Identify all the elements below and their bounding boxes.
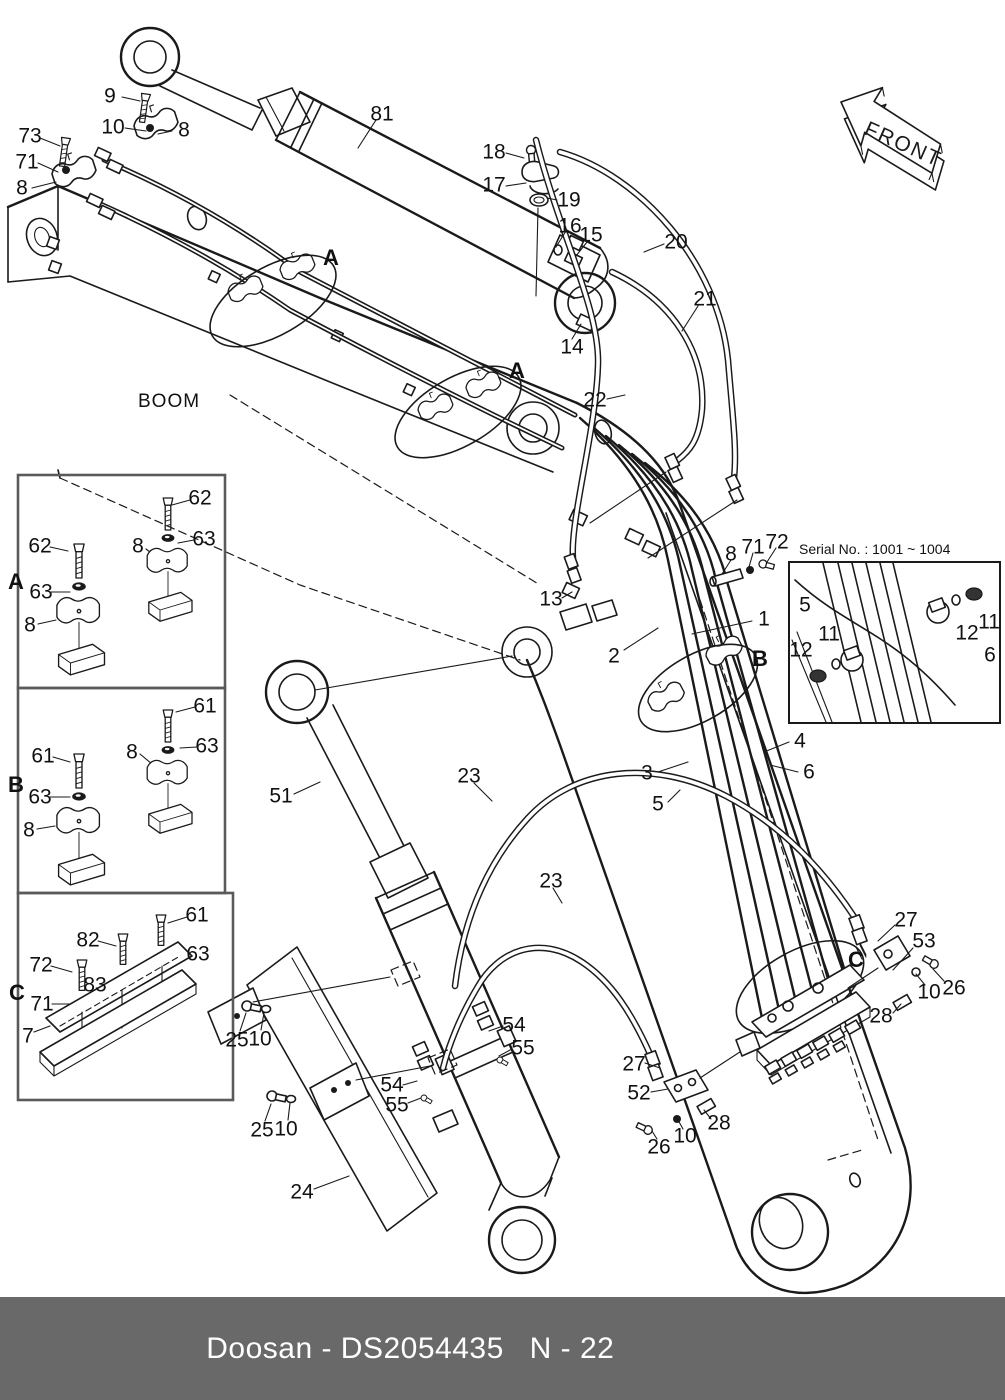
part-callout-62: 62 (28, 536, 51, 557)
part-callout-8: 8 (126, 742, 138, 763)
part-callout-71: 71 (15, 152, 38, 173)
part-callout-83: 83 (83, 975, 106, 996)
part-callout-28: 28 (707, 1113, 730, 1134)
part-callout-63: 63 (186, 944, 209, 965)
part-callout-23: 23 (457, 766, 480, 787)
part-callout-63: 63 (192, 529, 215, 550)
part-callout-11: 11 (818, 624, 840, 645)
pipe-manifold (635, 915, 939, 1136)
part-callout-25: 25 (250, 1120, 273, 1141)
part-callout-8: 8 (178, 120, 190, 141)
part-callout-26: 26 (942, 978, 965, 999)
part-callout-52: 52 (627, 1083, 650, 1104)
part-callout-10: 10 (274, 1119, 297, 1140)
part-callout-8: 8 (23, 820, 35, 841)
part-callout-5: 5 (652, 794, 664, 815)
hydraulic-pipes (87, 147, 847, 1018)
part-callout-61: 61 (185, 905, 208, 926)
part-callout-81: 81 (370, 104, 393, 125)
part-callout-13: 13 (539, 589, 562, 610)
part-callout-71: 71 (741, 537, 764, 558)
part-callout-19: 19 (557, 190, 580, 211)
part-callout-11: 11 (978, 612, 1000, 633)
part-callout-54: 54 (502, 1015, 525, 1036)
part-callout-73: 73 (18, 126, 41, 147)
part-callout-16: 16 (558, 216, 581, 237)
detail-marker-C: C (9, 982, 25, 1004)
detail-marker-B: B (8, 774, 24, 796)
part-callout-22: 22 (583, 390, 606, 411)
part-callout-82: 82 (76, 930, 99, 951)
footer-page-number: N - 22 (530, 1332, 615, 1366)
part-callout-54: 54 (380, 1075, 403, 1096)
part-callout-51: 51 (269, 786, 292, 807)
part-callout-2: 2 (608, 646, 620, 667)
part-callout-61: 61 (31, 746, 54, 767)
part-callout-26: 26 (647, 1137, 670, 1158)
diagram-artwork: FRONT (0, 0, 1005, 1400)
part-callout-25: 25 (225, 1030, 248, 1051)
part-callout-6: 6 (984, 645, 996, 666)
part-callout-27: 27 (894, 910, 917, 931)
part-callout-55: 55 (385, 1095, 408, 1116)
part-callout-4: 4 (794, 731, 806, 752)
part-callout-20: 20 (664, 232, 687, 253)
part-callout-17: 17 (482, 175, 505, 196)
part-callout-63: 63 (28, 787, 51, 808)
part-callout-28: 28 (869, 1006, 892, 1027)
part-callout-10: 10 (917, 982, 940, 1003)
part-callout-55: 55 (511, 1038, 534, 1059)
footer-doc-number: Doosan - DS2054435 (206, 1332, 504, 1366)
pin-fitting (710, 559, 775, 586)
part-callout-12: 12 (789, 640, 812, 661)
detail-marker-B: B (752, 648, 768, 670)
part-callout-61: 61 (193, 696, 216, 717)
guard-plate (208, 947, 457, 1231)
part-callout-9: 9 (104, 86, 116, 107)
detail-marker-A: A (509, 360, 525, 382)
part-callout-23: 23 (539, 871, 562, 892)
part-callout-10: 10 (248, 1029, 271, 1050)
part-callout-8: 8 (24, 615, 36, 636)
parts-diagram-page: FRONT BOOM Serial No. : 1001 ~ 1004 7371… (0, 0, 1005, 1400)
part-callout-72: 72 (765, 532, 788, 553)
footer-bar: Doosan - DS2054435 N - 22 (0, 1297, 1005, 1400)
pipe-clamps-top (48, 93, 180, 189)
part-callout-24: 24 (290, 1182, 313, 1203)
part-callout-14: 14 (560, 337, 583, 358)
part-callout-27: 27 (622, 1054, 645, 1075)
part-callout-62: 62 (188, 488, 211, 509)
part-callout-8: 8 (132, 536, 144, 557)
part-callout-6: 6 (803, 762, 815, 783)
detail-marker-A: A (8, 571, 24, 593)
detail-marker-C: C (848, 949, 864, 971)
front-direction-arrow: FRONT (822, 75, 964, 194)
part-callout-18: 18 (482, 142, 505, 163)
part-callout-10: 10 (673, 1126, 696, 1147)
detail-marker-A: A (323, 247, 339, 269)
part-callout-7: 7 (22, 1026, 34, 1047)
part-callout-8: 8 (16, 178, 28, 199)
part-callout-71: 71 (30, 994, 53, 1015)
part-callout-63: 63 (195, 736, 218, 757)
serial-box-title: Serial No. : 1001 ~ 1004 (799, 541, 950, 557)
part-callout-63: 63 (29, 582, 52, 603)
part-callout-3: 3 (641, 763, 653, 784)
hoses-top (536, 140, 743, 630)
part-callout-21: 21 (693, 289, 716, 310)
part-callout-8: 8 (725, 544, 737, 565)
part-callout-10: 10 (101, 117, 124, 138)
part-callout-5: 5 (799, 595, 811, 616)
part-callout-12: 12 (955, 623, 978, 644)
part-callout-15: 15 (579, 225, 602, 246)
boom-cylinder (121, 28, 615, 333)
part-callout-1: 1 (758, 609, 770, 630)
boom-label: BOOM (138, 391, 200, 413)
part-callout-72: 72 (29, 955, 52, 976)
part-callout-53: 53 (912, 931, 935, 952)
